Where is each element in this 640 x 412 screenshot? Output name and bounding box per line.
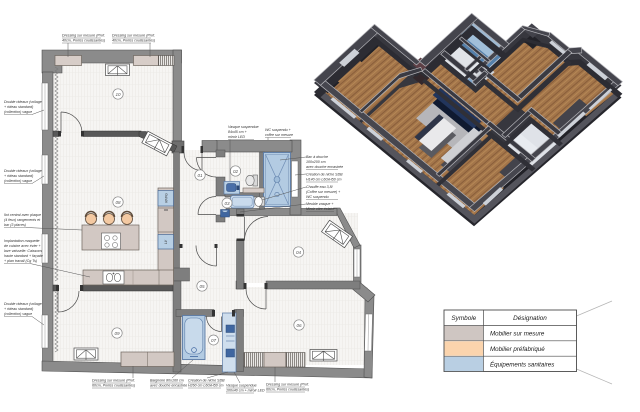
- svg-text:lave vaisselle: Caissons: lave vaisselle: Caissons: [4, 249, 42, 253]
- svg-text:Mobilier préfabriqué: Mobilier préfabriqué: [490, 346, 545, 353]
- svg-text:Dressing sur mesure (Prof.: Dressing sur mesure (Prof.: [112, 34, 155, 38]
- svg-text:84x45 cm +: 84x45 cm +: [228, 130, 247, 134]
- svg-text:+ plan travail (Cg Ts): + plan travail (Cg Ts): [4, 259, 37, 263]
- svg-text:Dressing sur mesure (Prof.: Dressing sur mesure (Prof.: [62, 34, 105, 38]
- svg-text:(collection) vague: (collection) vague: [4, 110, 32, 114]
- svg-text:de cuisine avec évier +: de cuisine avec évier +: [4, 244, 41, 248]
- svg-text:03: 03: [224, 201, 230, 206]
- svg-text:H260 cm L60xH50 cm: H260 cm L60xH50 cm: [188, 384, 224, 388]
- svg-text:Vasque suspendue: Vasque suspendue: [226, 384, 257, 388]
- svg-text:100x40 cm + miroir LED: 100x40 cm + miroir LED: [226, 389, 265, 393]
- svg-text:haute standard + façade: haute standard + façade: [4, 254, 43, 258]
- svg-text:H140 cm L60xH50 cm: H140 cm L60xH50 cm: [306, 178, 342, 182]
- svg-text:(collection) vague: (collection) vague: [4, 179, 32, 183]
- svg-text:Création de niche SDB: Création de niche SDB: [306, 173, 343, 177]
- svg-text:10: 10: [115, 92, 121, 97]
- svg-text:Mobilier sur mesure: Mobilier sur mesure: [490, 331, 545, 338]
- svg-text:WC suspendu: WC suspendu: [306, 195, 329, 199]
- svg-text:60cm, Portes coulissantes): 60cm, Portes coulissantes): [266, 388, 309, 392]
- svg-text:60cm, Portes coulissantes): 60cm, Portes coulissantes): [92, 384, 135, 388]
- svg-text:07: 07: [211, 338, 217, 343]
- svg-text:01: 01: [197, 173, 203, 178]
- svg-text:04: 04: [296, 250, 302, 255]
- svg-text:Meuble vasque +: Meuble vasque +: [306, 202, 333, 206]
- svg-text:40cm, Portes coulissantes): 40cm, Portes coulissantes): [62, 39, 105, 43]
- svg-text:+ rideau standard): + rideau standard): [4, 174, 33, 178]
- svg-text:WC suspendu +: WC suspendu +: [265, 128, 291, 132]
- svg-text:Chauffe eau 3,8l: Chauffe eau 3,8l: [306, 185, 333, 189]
- svg-text:Double rideaux (voilage: Double rideaux (voilage: [4, 100, 42, 104]
- svg-text:Équipements sanitaires: Équipements sanitaires: [490, 361, 554, 368]
- svg-text:40cm, Portes coulissantes): 40cm, Portes coulissantes): [112, 39, 155, 43]
- svg-text:Symbole: Symbole: [451, 315, 476, 322]
- svg-text:08: 08: [115, 200, 121, 205]
- svg-text:avec douche encastrée: avec douche encastrée: [150, 384, 187, 388]
- svg-text:Dressing sur mesure (Prof.: Dressing sur mesure (Prof.: [92, 379, 135, 383]
- svg-text:05: 05: [199, 284, 205, 289]
- svg-text:06: 06: [296, 323, 302, 328]
- svg-text:Baignoire 80x160 cm: Baignoire 80x160 cm: [150, 379, 184, 383]
- svg-text:09: 09: [114, 331, 120, 336]
- svg-text:Désignation: Désignation: [513, 315, 547, 322]
- svg-text:Implantation maquette: Implantation maquette: [4, 239, 40, 243]
- svg-text:(Coffre sur mesure) +: (Coffre sur mesure) +: [306, 190, 340, 194]
- svg-text:(collection) vague: (collection) vague: [4, 312, 32, 316]
- svg-text:RF/FG: RF/FG: [165, 193, 169, 203]
- svg-text:+ rideau standard): + rideau standard): [4, 307, 33, 311]
- svg-text:Bac à douche: Bac à douche: [306, 155, 328, 159]
- svg-text:Miroir vitre éclairé: Miroir vitre éclairé: [306, 207, 334, 211]
- svg-text:Double rideaux (voilage: Double rideaux (voilage: [4, 169, 42, 173]
- svg-text:bar (3 places): bar (3 places): [4, 223, 26, 227]
- svg-text:coffre sur mesure: coffre sur mesure: [265, 133, 293, 137]
- svg-text:Vasque suspendue: Vasque suspendue: [228, 125, 259, 129]
- svg-text:(4 feux) rangements et: (4 feux) rangements et: [4, 218, 41, 222]
- svg-text:Double rideaux (voilage: Double rideaux (voilage: [4, 302, 42, 306]
- svg-text:100x200 cm: 100x200 cm: [306, 160, 326, 164]
- svg-text:Dressing sur mesure (Prof.: Dressing sur mesure (Prof.: [266, 383, 309, 387]
- svg-text:miroir LED: miroir LED: [228, 135, 245, 139]
- svg-text:avec douche encastrée: avec douche encastrée: [306, 165, 343, 169]
- svg-text:+ rideau standard): + rideau standard): [4, 105, 33, 109]
- svg-text:02: 02: [233, 169, 239, 174]
- svg-text:Ilot central avec plaque: Ilot central avec plaque: [4, 213, 41, 217]
- svg-text:Création de niche SDB: Création de niche SDB: [188, 379, 225, 383]
